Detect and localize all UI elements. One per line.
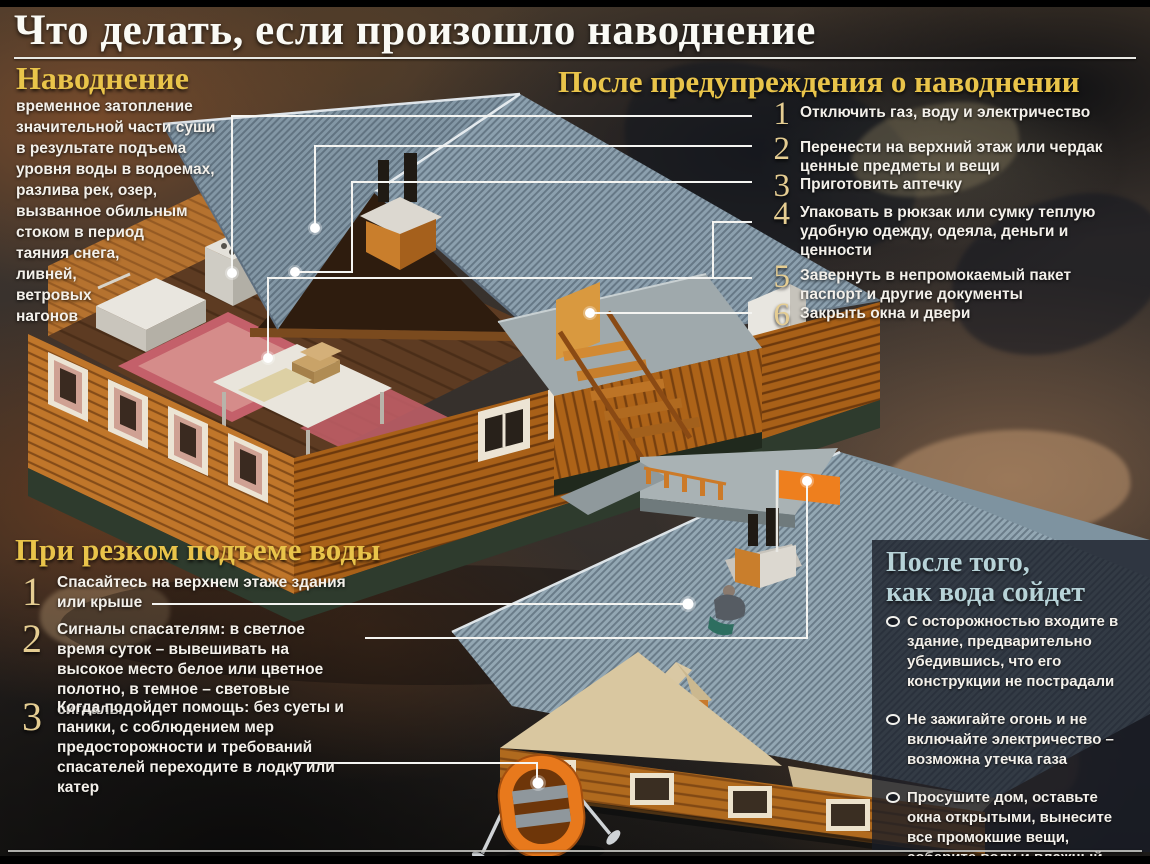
ring-bullet-icon xyxy=(886,616,900,627)
sudden-rise-heading: При резком подъеме воды xyxy=(15,532,380,568)
top-letterbox-bar xyxy=(0,0,1150,7)
bottom-rule xyxy=(8,850,1142,852)
text-wrap-spacer xyxy=(191,222,221,243)
step-text: Закрыть окна и двери xyxy=(800,304,1130,323)
after-water-item: Не зажигайте огонь и не включайте электр… xyxy=(886,710,1134,770)
callout-line-gas xyxy=(232,116,752,273)
after-water-item: С осторожностью входите в здание, предва… xyxy=(886,612,1134,692)
text-wrap-spacer xyxy=(101,285,221,348)
infographic-canvas: Что делать, если произошло наводнение На… xyxy=(0,0,1150,864)
step-number: 2 xyxy=(748,131,790,168)
after-water-panel: После того, как вода сойдет С осторожнос… xyxy=(872,540,1150,852)
ring-bullet-icon xyxy=(886,792,900,803)
step-text: Приготовить аптечку xyxy=(800,175,1130,194)
after-water-heading: После того, как вода сойдет xyxy=(886,548,1085,608)
callout-line-flag xyxy=(365,481,807,638)
definition-body: временное затопление значительной части … xyxy=(16,96,221,348)
callout-line-documents xyxy=(268,278,752,358)
step-number: 1 xyxy=(748,96,790,133)
step-number: 4 xyxy=(748,196,790,233)
bottom-letterbox-bar xyxy=(0,856,1150,864)
after-warning-heading: После предупреждения о наводнении xyxy=(558,64,1080,100)
title-rule xyxy=(14,57,1136,59)
step-text: Упаковать в рюкзак или сумку теплую удоб… xyxy=(800,203,1130,260)
after-water-item: Просушите дом, оставьте окна открытыми, … xyxy=(886,788,1134,864)
step-number: 6 xyxy=(748,297,790,334)
step-text: Спасайтесь на верхнем этаже здания или к… xyxy=(57,573,357,613)
after-water-heading-line2: как вода сойдет xyxy=(886,578,1085,608)
step-number: 3 xyxy=(8,693,42,740)
step-number: 1 xyxy=(8,568,42,615)
step-text: Отключить газ, воду и электричество xyxy=(800,103,1130,122)
after-water-item-text: С осторожностью входите в здание, предва… xyxy=(907,612,1134,692)
callout-line-attic xyxy=(315,146,752,228)
step-number: 2 xyxy=(8,615,42,662)
text-wrap-spacer xyxy=(126,264,221,285)
after-water-heading-line1: После того, xyxy=(886,548,1085,578)
definition-heading: Наводнение xyxy=(16,60,189,97)
step-text: Перенести на верхний этаж или чердак цен… xyxy=(800,138,1130,176)
step-text: Когда подойдет помощь: без суеты и паник… xyxy=(57,698,357,798)
page-title: Что делать, если произошло наводнение xyxy=(14,6,816,55)
callout-line-firstaid xyxy=(295,182,752,272)
callout-line-backpack xyxy=(713,222,752,278)
text-wrap-spacer xyxy=(156,243,221,264)
step-text: Завернуть в непромокаемый пакет паспорт … xyxy=(800,266,1130,304)
ring-bullet-icon xyxy=(886,714,900,725)
after-water-item-text: Не зажигайте огонь и не включайте электр… xyxy=(907,710,1134,770)
after-water-item-text: Просушите дом, оставьте окна открытыми, … xyxy=(907,788,1134,864)
step-number: 5 xyxy=(748,259,790,296)
